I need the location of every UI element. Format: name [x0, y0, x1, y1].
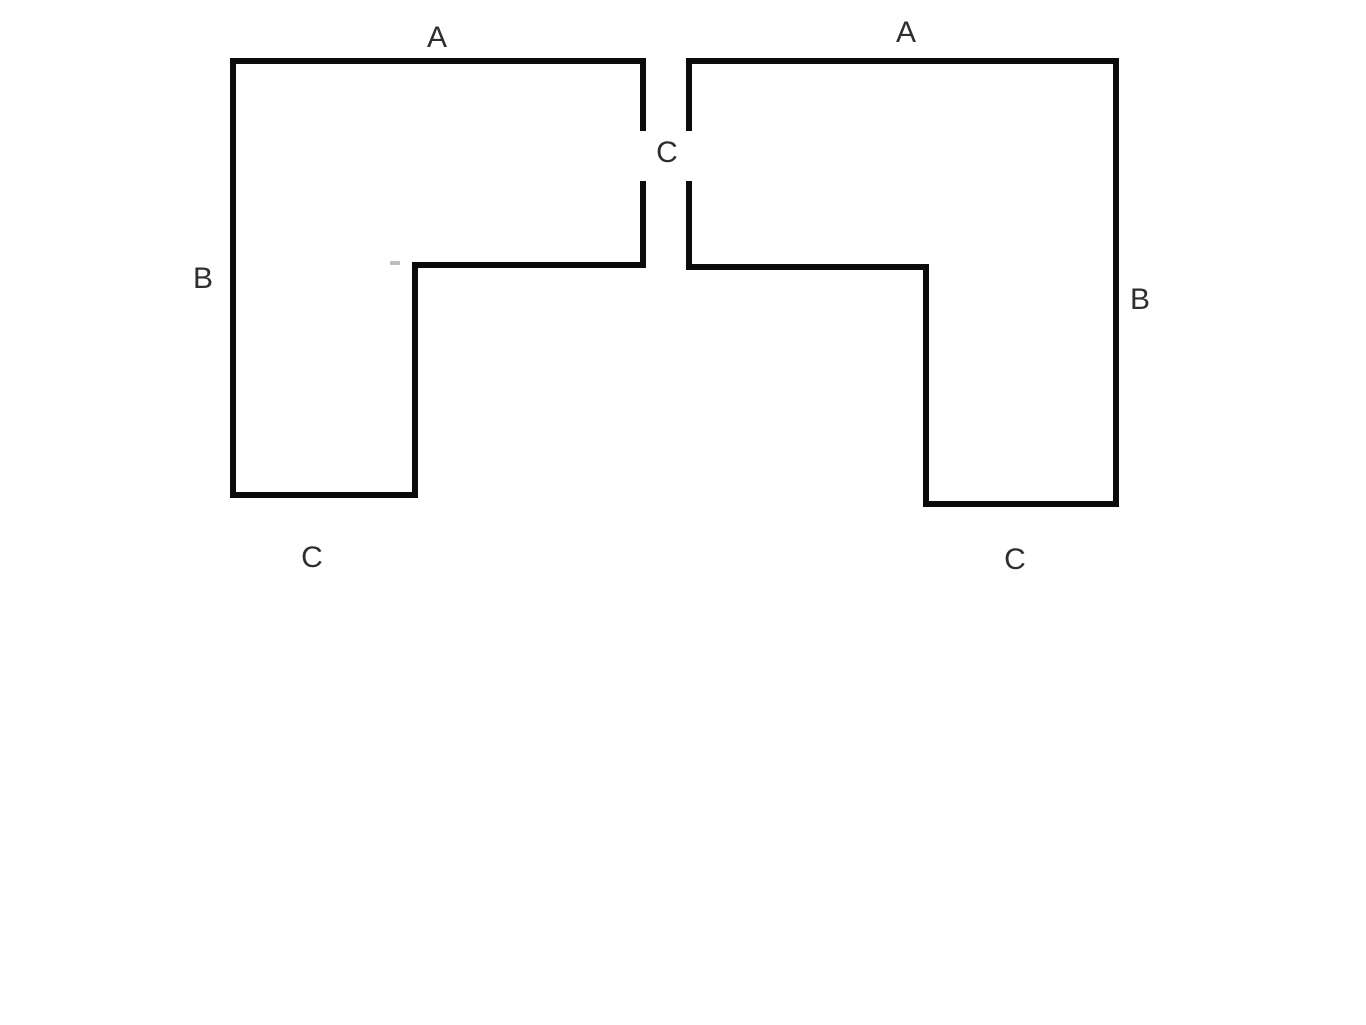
label-c-left-bottom: C [301, 543, 323, 573]
right-l-shape-outline [689, 61, 1116, 504]
label-a-left: A [427, 23, 447, 53]
l-shapes-diagram [0, 0, 1366, 1025]
diagram-canvas: AACBBCC [0, 0, 1366, 1025]
label-a-right: A [896, 18, 916, 48]
label-b-right: B [1130, 285, 1150, 315]
left-l-shape-outline [233, 61, 643, 495]
stray-pen-mark [390, 261, 400, 265]
label-c-right-bottom: C [1004, 545, 1026, 575]
label-b-left: B [193, 264, 213, 294]
label-c-middle: C [656, 138, 678, 168]
